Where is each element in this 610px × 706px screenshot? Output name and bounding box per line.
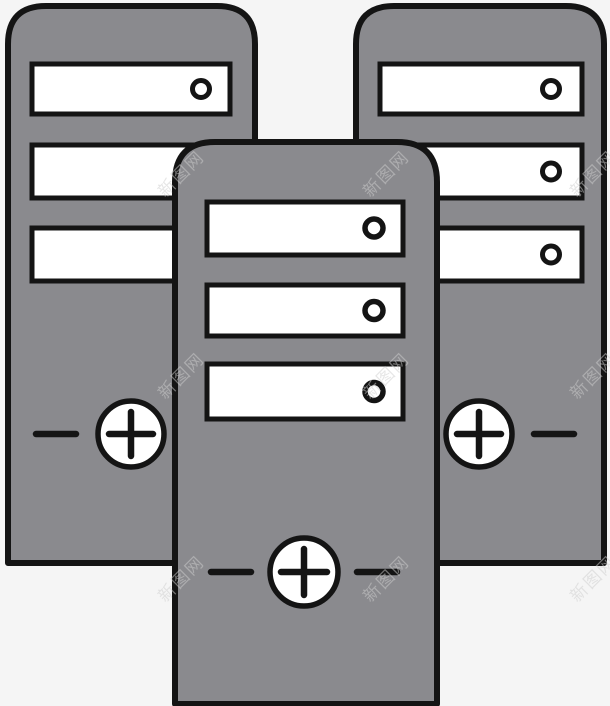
bay-dot-icon	[193, 81, 210, 98]
bay-dot-icon	[365, 383, 383, 401]
front-center-tower	[175, 142, 437, 704]
illustration-canvas: 新图网 新图网 新图网 新图网 新图网 新图网 新图网 新图网 新图网	[0, 0, 610, 706]
bay-dot-icon	[543, 81, 560, 98]
bay-dot-icon	[543, 163, 560, 180]
bay-dot-icon	[365, 219, 383, 237]
server-towers-illustration	[0, 0, 610, 706]
bay-dot-icon	[365, 302, 383, 320]
bay-dot-icon	[543, 246, 560, 263]
